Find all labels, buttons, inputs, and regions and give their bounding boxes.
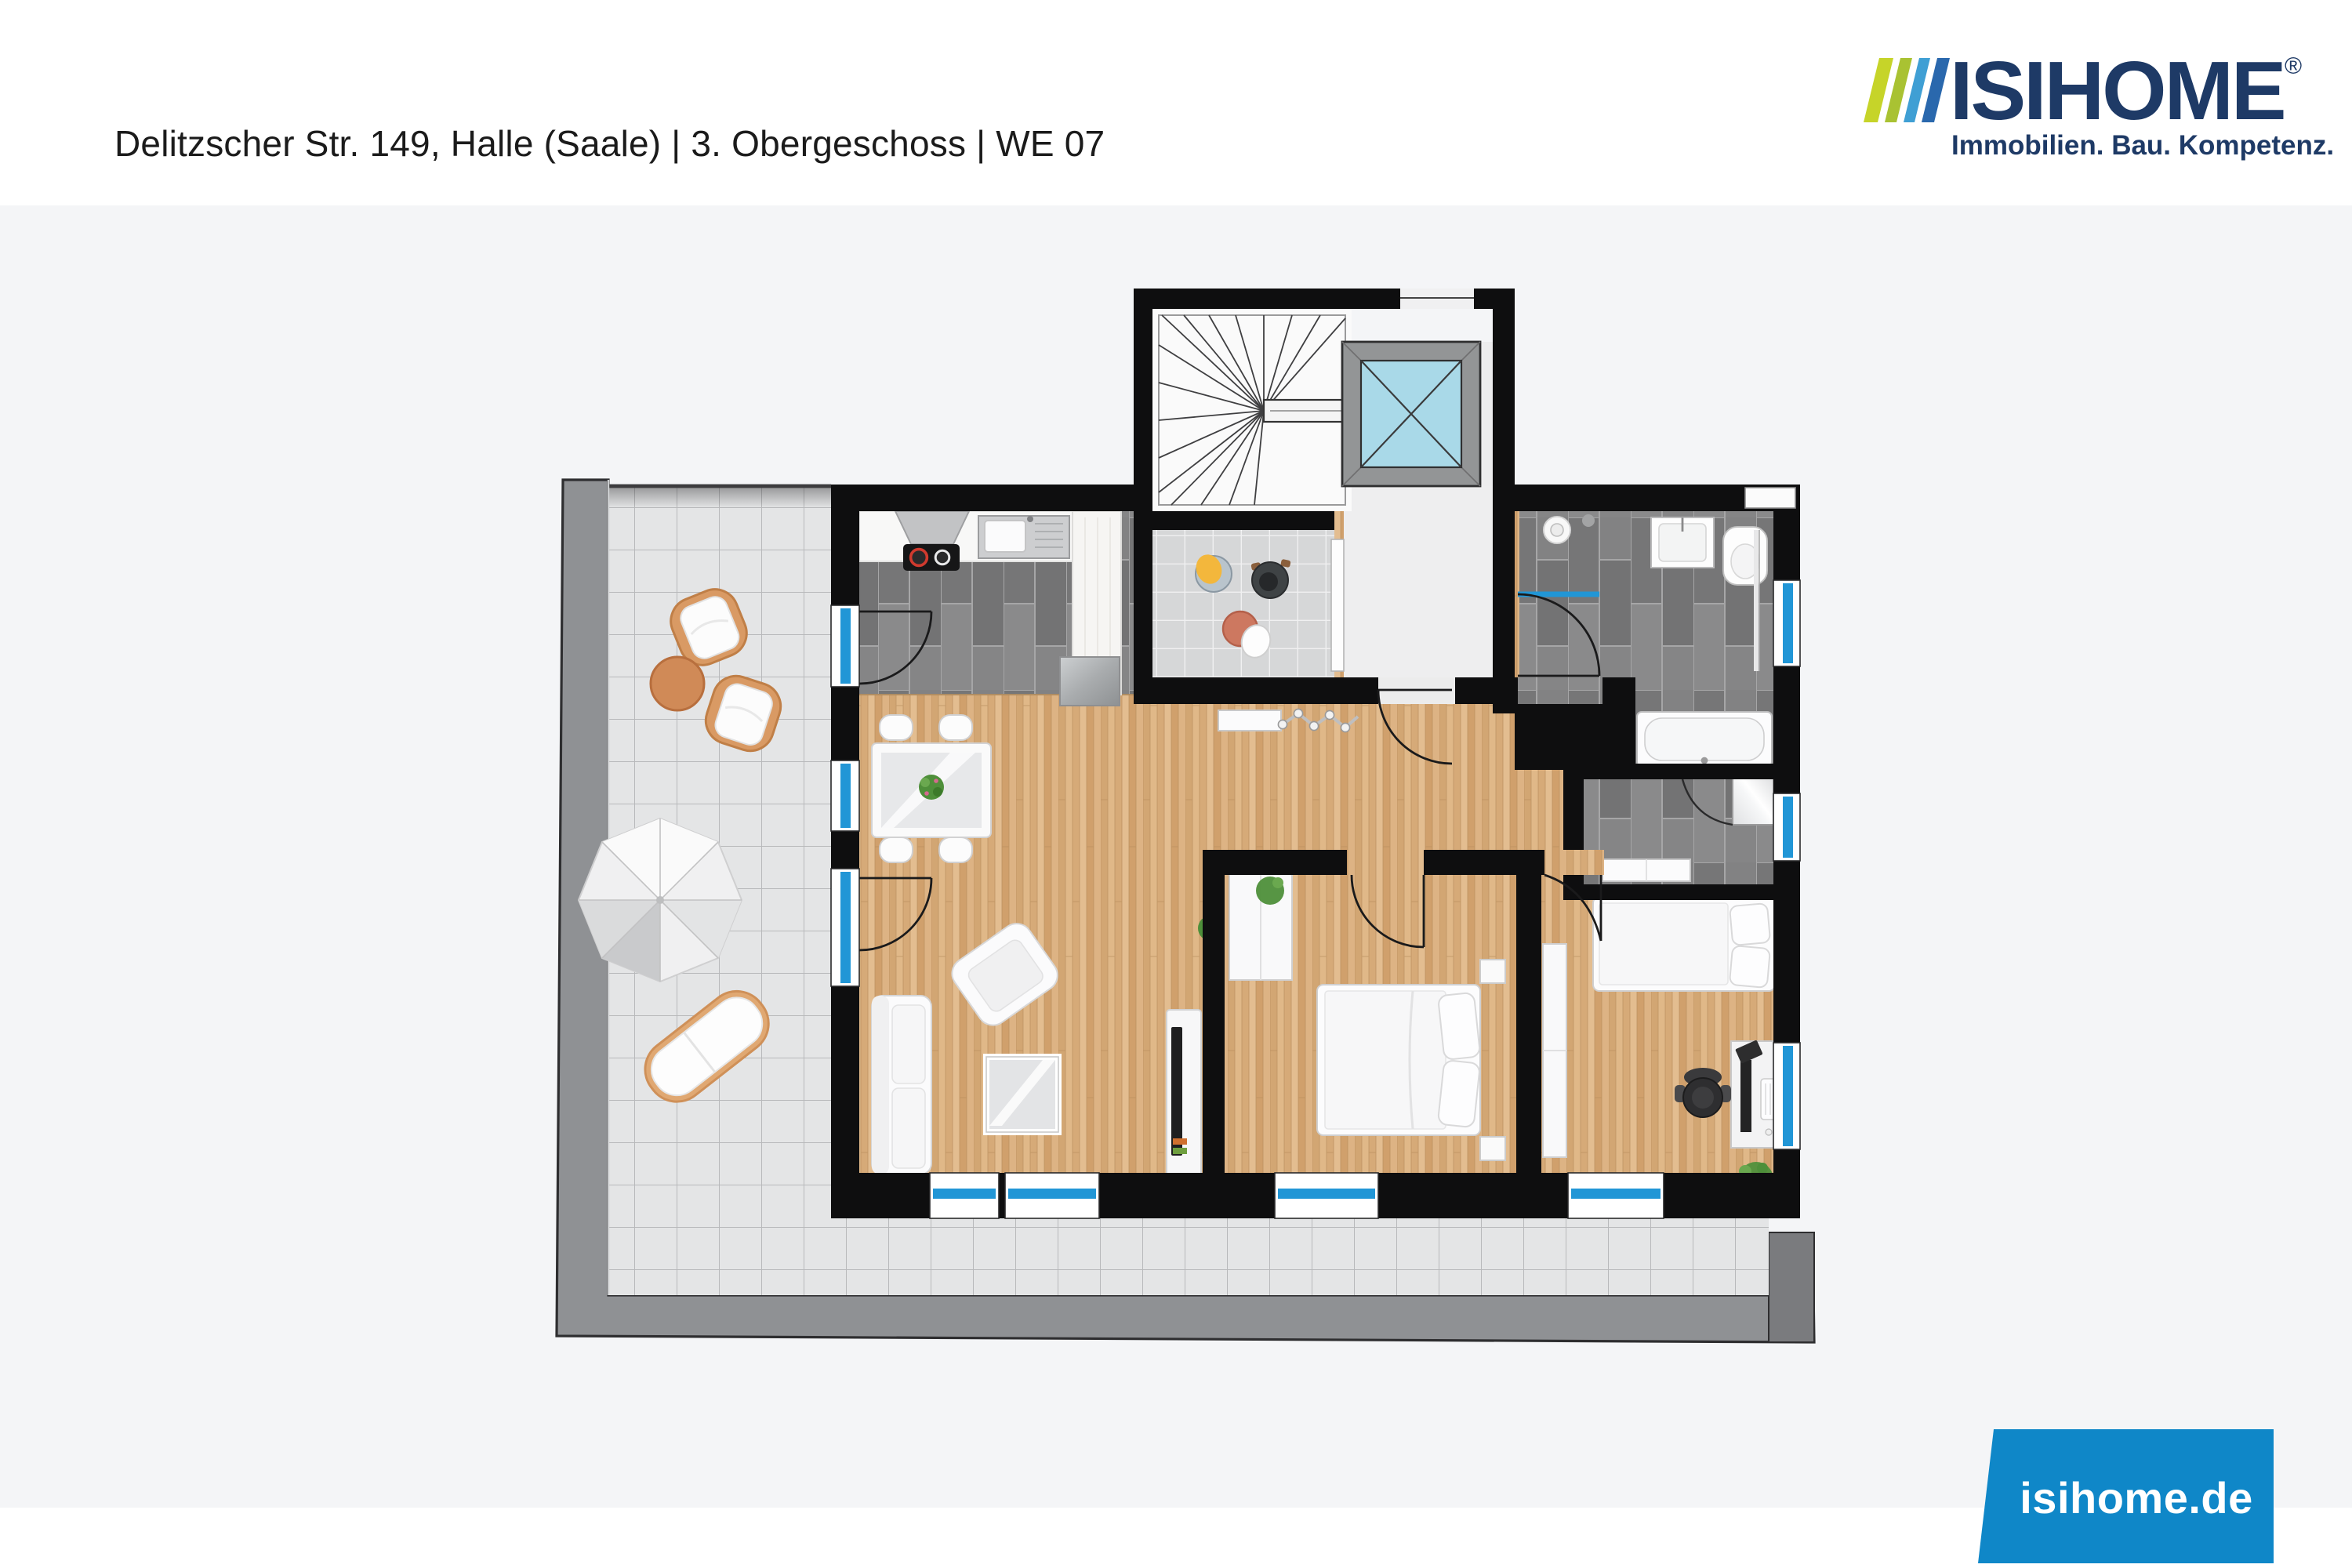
window-icon bbox=[831, 869, 859, 986]
sideboard-icon bbox=[1218, 710, 1281, 731]
logo-stripes-icon bbox=[1864, 55, 1950, 125]
double-bed-icon bbox=[1317, 985, 1480, 1135]
cooktop-icon bbox=[903, 544, 960, 571]
dining-table-icon bbox=[872, 743, 991, 837]
floor-plan bbox=[0, 0, 2352, 1568]
window-icon bbox=[1275, 1173, 1378, 1218]
tv-icon bbox=[1171, 1027, 1182, 1156]
landing-floor bbox=[1344, 486, 1493, 690]
window-icon bbox=[1773, 1043, 1800, 1149]
logo-wordmark: ISIHOME bbox=[1950, 44, 2285, 139]
elevator-icon bbox=[1342, 342, 1493, 486]
shower-icon bbox=[1733, 771, 1773, 825]
glass-panel bbox=[1331, 539, 1344, 671]
kitchen-sink-icon bbox=[978, 516, 1069, 558]
nightstand-icon bbox=[1480, 960, 1505, 983]
registered-trademark-icon: ® bbox=[2285, 53, 2302, 80]
washbasin-icon bbox=[1651, 517, 1714, 568]
window-icon bbox=[930, 1173, 999, 1218]
page-title: Delitzscher Str. 149, Halle (Saale) | 3.… bbox=[114, 122, 1105, 165]
single-bed-icon bbox=[1593, 897, 1775, 991]
sofa-icon bbox=[872, 996, 931, 1174]
bathtub-icon bbox=[1637, 712, 1772, 770]
coffee-table-icon bbox=[986, 1057, 1058, 1132]
fridge-icon bbox=[1060, 657, 1120, 706]
monitor-icon bbox=[1740, 1060, 1751, 1132]
tv-board-icon bbox=[1167, 1010, 1201, 1176]
window-icon bbox=[1005, 1173, 1099, 1218]
window-icon bbox=[1568, 1173, 1664, 1218]
window-icon bbox=[831, 760, 859, 831]
stairwell bbox=[1152, 309, 1493, 511]
isihome-logo: ISIHOME ® Immobilien. Bau. Kompetenz. bbox=[1864, 47, 2318, 165]
parasol-icon bbox=[579, 818, 742, 982]
window-icon bbox=[1773, 793, 1800, 861]
website-url: isihome.de bbox=[2007, 1472, 2266, 1523]
window-icon bbox=[831, 605, 859, 687]
loggia-floor bbox=[1152, 530, 1334, 677]
side-table-icon bbox=[651, 657, 704, 710]
wall-niche bbox=[1745, 488, 1795, 508]
footer-website-box: isihome.de bbox=[1964, 1429, 2276, 1563]
nightstand-icon bbox=[1480, 1137, 1505, 1160]
plant-icon bbox=[1256, 877, 1284, 905]
plant-icon bbox=[919, 775, 944, 800]
logo-tagline: Immobilien. Bau. Kompetenz. bbox=[1951, 130, 2337, 162]
toilet-icon bbox=[1723, 527, 1767, 585]
window-icon bbox=[1773, 580, 1800, 666]
